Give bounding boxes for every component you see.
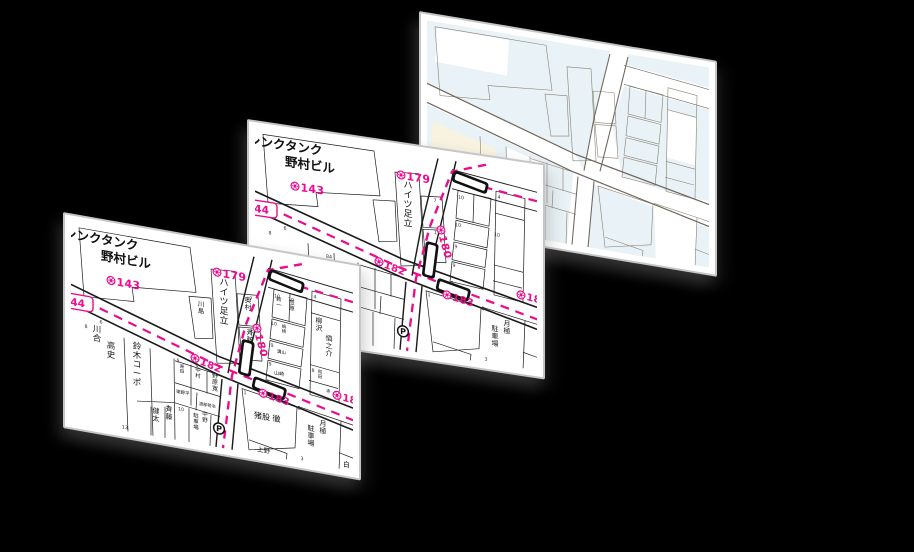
block-marker-icon bbox=[291, 182, 299, 191]
block-marker-icon bbox=[333, 390, 342, 400]
map-name-label: ハイツ足立 bbox=[220, 278, 229, 328]
map-name-label: 笠原 bbox=[289, 298, 295, 313]
svg-text:183: 183 bbox=[451, 292, 474, 309]
lot-number: 10 bbox=[455, 222, 461, 229]
map-name-label: 上野 bbox=[257, 444, 270, 455]
lot-number: 9 bbox=[454, 244, 457, 250]
map-name-label: 川島 bbox=[198, 300, 205, 316]
lot-number: 10 bbox=[494, 232, 500, 239]
map-name-label: 月極 bbox=[319, 418, 326, 436]
svg-text:183: 183 bbox=[267, 391, 290, 409]
svg-text:180: 180 bbox=[436, 235, 454, 259]
map-name-label: 駐車場 bbox=[193, 411, 199, 432]
lot-number: 7 bbox=[433, 198, 436, 204]
map-name-label: 渡部勢治 bbox=[199, 400, 216, 410]
block-number: 143 bbox=[107, 274, 140, 293]
lot-number: 8 bbox=[266, 379, 269, 385]
map-name-label: 猪股 徹 bbox=[254, 410, 280, 425]
block-number: 143 bbox=[291, 180, 324, 198]
lot-number: 3 bbox=[484, 357, 487, 363]
svg-text:180: 180 bbox=[252, 333, 270, 357]
map-name-label: 駐車場 bbox=[307, 423, 314, 448]
map-name-label: 月極 bbox=[504, 318, 511, 335]
svg-text:182: 182 bbox=[383, 260, 407, 279]
lot-number: 1 bbox=[427, 292, 430, 298]
block-number: 144 bbox=[71, 291, 93, 312]
svg-text:P: P bbox=[216, 424, 222, 434]
lot-number: 10 bbox=[178, 406, 184, 413]
map-name-label: 健太 bbox=[152, 406, 159, 424]
lot-number: 8 bbox=[481, 306, 484, 312]
annotated-map-canvas-front: 68135871071110101099848138シンクタンク野村ビル川島ハイ… bbox=[71, 221, 353, 471]
building-bar-icon bbox=[422, 241, 439, 280]
lot-number: 9 bbox=[270, 343, 273, 349]
lot-number: 9 bbox=[268, 361, 271, 367]
block-number-labels: 14314417918018218318 bbox=[71, 238, 353, 420]
parking-icon: P bbox=[398, 325, 409, 337]
lot-number: 10 bbox=[458, 195, 464, 202]
building-bar-icon bbox=[451, 170, 489, 195]
map-name-label: 駐車場 bbox=[492, 324, 499, 349]
lot-number: 6 bbox=[283, 225, 286, 231]
map-name-label: 斉藤 bbox=[165, 404, 172, 422]
map-name-label: 和田 bbox=[318, 368, 323, 381]
map-name-label: 野原寛 bbox=[212, 371, 218, 393]
map-name-label: 奥村 bbox=[244, 295, 251, 313]
lot-number: 3 bbox=[300, 456, 303, 462]
block-marker-icon bbox=[517, 290, 526, 300]
map-name-label: 慎之介 bbox=[325, 333, 332, 358]
map-name-label: 山崎 bbox=[274, 369, 284, 378]
map-name-label: ハイツ足立 bbox=[404, 180, 413, 229]
map-name-label: 東野平 bbox=[176, 388, 190, 397]
map-name-label: 中野 bbox=[202, 410, 208, 425]
map-name-label: 野村ビル bbox=[285, 154, 335, 176]
block-number: 179 bbox=[397, 169, 430, 187]
map-name-label: 嶋崎 bbox=[282, 323, 287, 336]
svg-text:144: 144 bbox=[255, 202, 269, 217]
map-name-label: 中村 bbox=[195, 365, 201, 380]
lot-number: 8 bbox=[84, 324, 87, 330]
map-name-label: 新一 bbox=[276, 295, 282, 310]
map-name-label: 溝山 bbox=[277, 348, 286, 357]
map-name-label: 鈴木コーポ bbox=[133, 339, 142, 389]
map-name-label: 白 bbox=[343, 459, 350, 469]
lot-number: 1 bbox=[243, 390, 246, 396]
map-name-label: 寺 bbox=[326, 388, 331, 395]
lot-number: 8 bbox=[450, 280, 453, 286]
lot-number: 8 bbox=[311, 368, 314, 374]
lot-number: 13 bbox=[122, 424, 128, 431]
lot-number: 8 bbox=[297, 405, 300, 411]
lot-number: 9 bbox=[452, 263, 455, 269]
lot-number: 4 bbox=[497, 194, 500, 200]
svg-text:182: 182 bbox=[199, 357, 223, 376]
block-marker-icon bbox=[397, 171, 405, 180]
block-number: 144 bbox=[255, 198, 277, 218]
map-name-label: 高史 bbox=[107, 339, 116, 361]
svg-text:P: P bbox=[400, 327, 406, 337]
svg-text:143: 143 bbox=[117, 276, 141, 293]
map-card-stack: 68847111010998410138シンクタンク野村ビルハイツ足立駐車場月極… bbox=[0, 0, 914, 552]
lot-number: 8 bbox=[268, 230, 271, 236]
block-number: 179 bbox=[213, 266, 246, 285]
building-bar-icon bbox=[267, 268, 305, 293]
block-marker-icon bbox=[107, 276, 115, 285]
map-name-label: 原田 bbox=[180, 364, 185, 376]
parking-icon: P bbox=[214, 422, 225, 435]
map-name-label: 野村ビル bbox=[101, 248, 151, 272]
svg-text:143: 143 bbox=[301, 181, 325, 197]
map-name-label: 柳沢 bbox=[315, 316, 322, 334]
lot-number: 10 bbox=[271, 321, 277, 328]
block-marker-icon bbox=[213, 268, 221, 277]
map-name-label: 川合 bbox=[93, 324, 102, 345]
lot-number: 4 bbox=[313, 294, 316, 300]
